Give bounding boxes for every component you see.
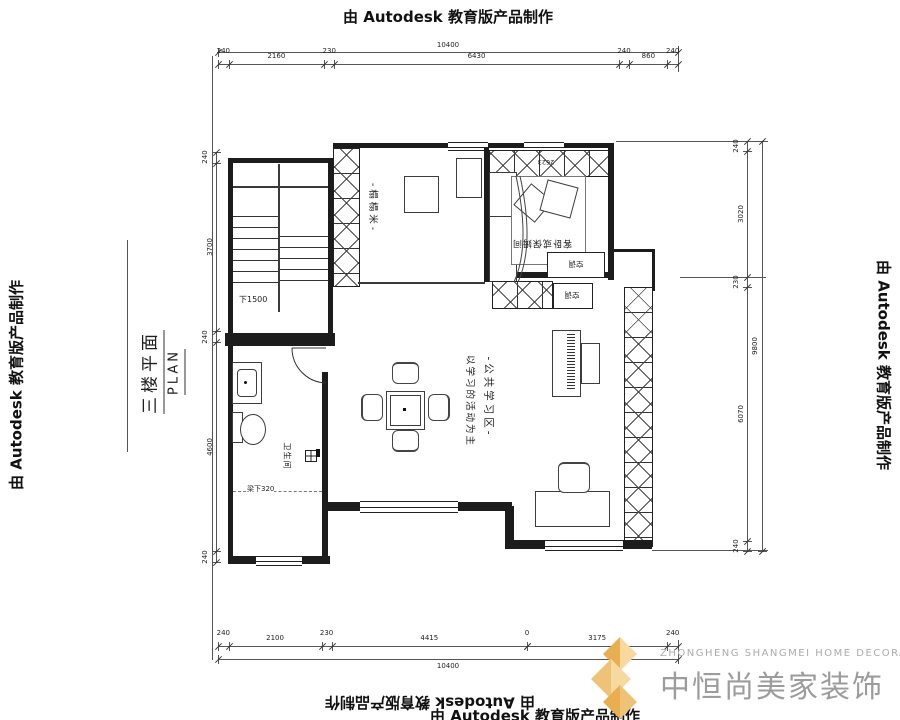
title-block-rule [127, 240, 128, 452]
extension-line-right-mid [680, 277, 766, 278]
dim-label: 240 [666, 47, 679, 55]
bathroom-label: 卫生间 [282, 443, 293, 470]
dim-label: 3175 [588, 634, 606, 642]
logo-text-cn: 中恒尚美家装饰 [660, 662, 884, 706]
dim-label: 240 [732, 539, 740, 552]
dim-label: 3700 [206, 238, 214, 256]
dim-label: 2100 [266, 634, 284, 642]
study-area-sublabel: 以学习的活动为主 [464, 355, 478, 447]
floor-plan-sheet: 由 Autodesk 教育版产品制作 由 Autodesk 教育版产品制作 由 … [0, 0, 900, 720]
door-arcs [210, 140, 670, 570]
dim-label: 6070 [737, 405, 745, 423]
dim-label: 240 [666, 629, 679, 637]
closet-dim-label: 2623 [538, 158, 555, 166]
study-area-label: -公共学习区- [482, 356, 497, 437]
dim-label: 240 [201, 550, 209, 563]
dim-label: 240 [217, 47, 230, 55]
logo-triangle [591, 659, 611, 699]
beam-note: 梁下320 [247, 484, 274, 494]
tatami-label: -榻榻米- [367, 183, 381, 233]
logo-mark [589, 637, 649, 717]
guest-room-label: 客卧或保姆间 [512, 238, 572, 251]
dim-label: 4415 [420, 634, 438, 642]
ac-label: 空调 [569, 259, 584, 270]
stamp-right: 由 Autodesk 教育版产品制作 [874, 260, 895, 470]
logo-triangle [620, 637, 637, 671]
dim-total-label: 10400 [437, 41, 459, 49]
ac-label: 空调 [565, 290, 580, 301]
dim-label: 6430 [468, 52, 486, 60]
dim-label: 240 [732, 139, 740, 152]
dim-line [218, 52, 678, 53]
dim-label: 3020 [737, 205, 745, 223]
dim-label: 230 [320, 629, 333, 637]
dim-label: 240 [201, 151, 209, 164]
dim-label: 230 [732, 276, 740, 289]
dim-label: 240 [617, 47, 630, 55]
dim-label: 4600 [206, 438, 214, 456]
stair-down-note: 下1500 [239, 294, 267, 305]
stamp-left: 由 Autodesk 教育版产品制作 [6, 280, 27, 490]
stamp-bottom: 由 Autodesk 教育版产品制作 [325, 693, 535, 714]
dim-label: 240 [217, 629, 230, 637]
dim-label: 230 [323, 47, 336, 55]
page-title: 三楼平面 [136, 330, 165, 414]
dim-label: 2160 [267, 52, 285, 60]
dim-label: 240 [201, 330, 209, 343]
dim-line [747, 141, 748, 551]
logo-triangle [620, 685, 637, 719]
dim-label: 0 [525, 629, 529, 637]
dim-line [218, 64, 678, 65]
dim-label: 860 [642, 52, 655, 60]
dim-total-label: 10400 [437, 662, 459, 670]
dim-total-label: 9800 [751, 337, 759, 355]
plan-label: PLAN [167, 349, 186, 395]
stamp-top: 由 Autodesk 教育版产品制作 [343, 6, 553, 27]
logo-text-en: ZHONGHENG SHANGMEI HOME DECORATION [660, 648, 900, 659]
dim-line [762, 141, 763, 551]
